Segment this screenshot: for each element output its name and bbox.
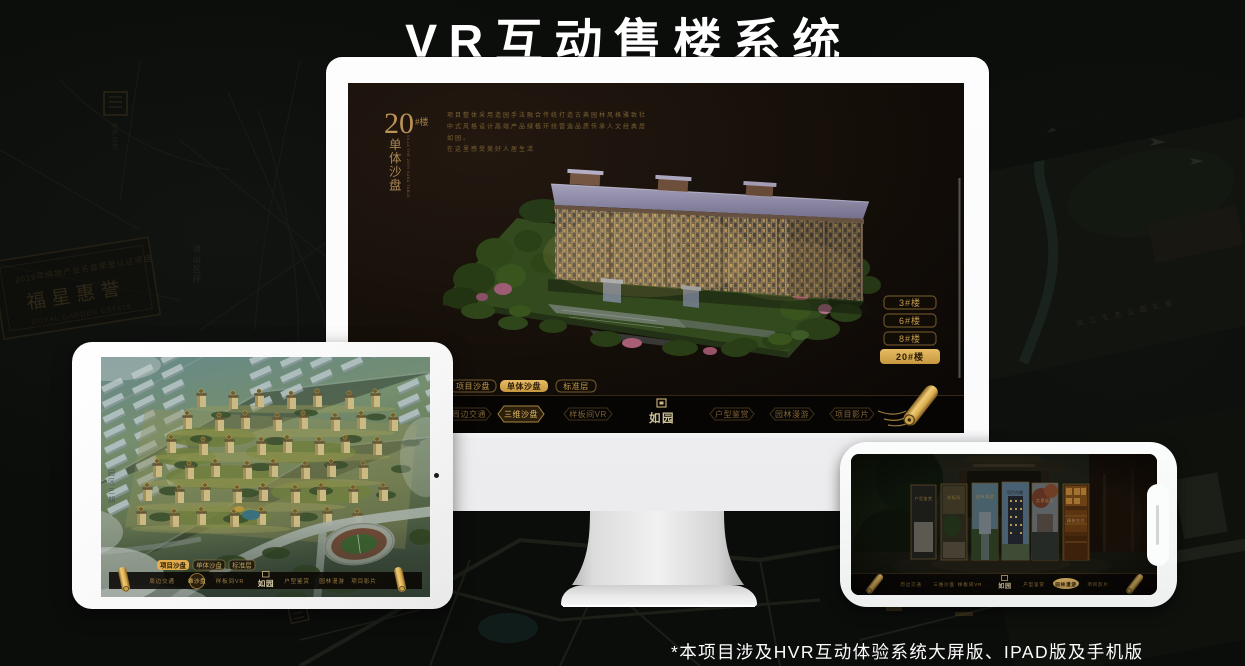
svg-text:单体沙盘: 单体沙盘 [196,561,223,570]
svg-text:地产示范: 地产示范 [112,122,118,151]
svg-text:维沙盘: 维沙盘 [188,577,206,585]
svg-text:洪山区环: 洪山区环 [193,244,201,284]
svg-text:户型鉴赏: 户型鉴赏 [284,577,310,585]
svg-text:园林漫游: 园林漫游 [319,577,345,585]
svg-text:样板间VR: 样板间VR [216,577,245,585]
svg-text:项目影片: 项目影片 [351,577,377,585]
svg-text:周边交通: 周边交通 [149,577,175,585]
svg-text:如园: 如园 [258,578,275,588]
svg-text:项目沙盘: 项目沙盘 [160,561,187,570]
svg-text:标准层: 标准层 [232,561,252,570]
